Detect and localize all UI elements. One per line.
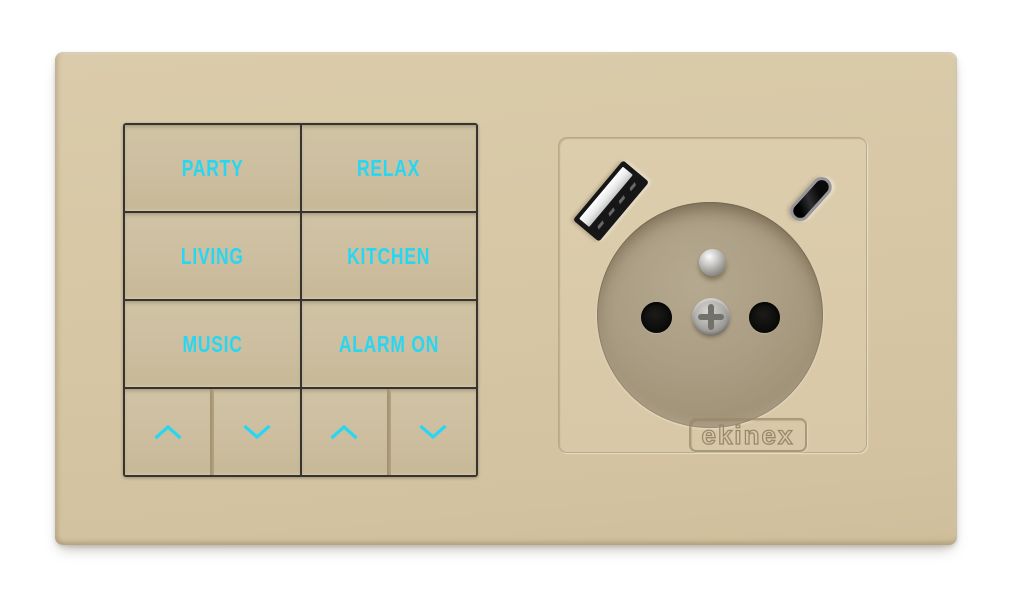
chevron-down-icon xyxy=(242,423,272,441)
live-pin-hole xyxy=(641,302,672,333)
product-image: PARTY RELAX LIVING KITCHEN MUSIC ALARM O… xyxy=(0,0,1012,600)
chevron-down-icon xyxy=(418,423,448,441)
chevron-up-icon xyxy=(153,423,183,441)
brand-logo: ekinex xyxy=(689,418,807,452)
scene-button-relax[interactable]: RELAX xyxy=(302,125,477,211)
scene-button-kitchen[interactable]: KITCHEN xyxy=(302,213,477,299)
phillips-screw-icon xyxy=(692,298,730,336)
scene-button-label: MUSIC xyxy=(182,331,242,358)
rocker-pair-left xyxy=(125,389,300,475)
rocker-up-button[interactable] xyxy=(125,423,210,441)
scene-button-living[interactable]: LIVING xyxy=(125,213,300,299)
rocker-down-button[interactable] xyxy=(214,423,299,441)
brand-logo-text: ekinex xyxy=(702,422,795,448)
rocker-up-button[interactable] xyxy=(302,423,387,441)
wall-plate: PARTY RELAX LIVING KITCHEN MUSIC ALARM O… xyxy=(55,52,957,545)
rocker-pair-right xyxy=(302,389,477,475)
scene-button-alarm-on[interactable]: ALARM ON xyxy=(302,301,477,387)
usb-c-port xyxy=(786,173,836,225)
scene-button-music[interactable]: MUSIC xyxy=(125,301,300,387)
socket-recess: ekinex xyxy=(597,202,823,428)
neutral-pin-hole xyxy=(749,302,780,333)
scene-button-label: KITCHEN xyxy=(347,243,430,270)
scene-button-party[interactable]: PARTY xyxy=(125,125,300,211)
scene-button-label: ALARM ON xyxy=(339,331,439,358)
scene-button-label: PARTY xyxy=(181,155,243,182)
scene-button-label: RELAX xyxy=(357,155,420,182)
scene-keypad: PARTY RELAX LIVING KITCHEN MUSIC ALARM O… xyxy=(123,123,478,477)
chevron-up-icon xyxy=(329,423,359,441)
center-screw xyxy=(692,298,730,336)
rocker-down-button[interactable] xyxy=(391,423,476,441)
socket-module: ekinex xyxy=(558,137,867,453)
scene-button-label: LIVING xyxy=(181,243,244,270)
earth-pin xyxy=(699,249,726,276)
